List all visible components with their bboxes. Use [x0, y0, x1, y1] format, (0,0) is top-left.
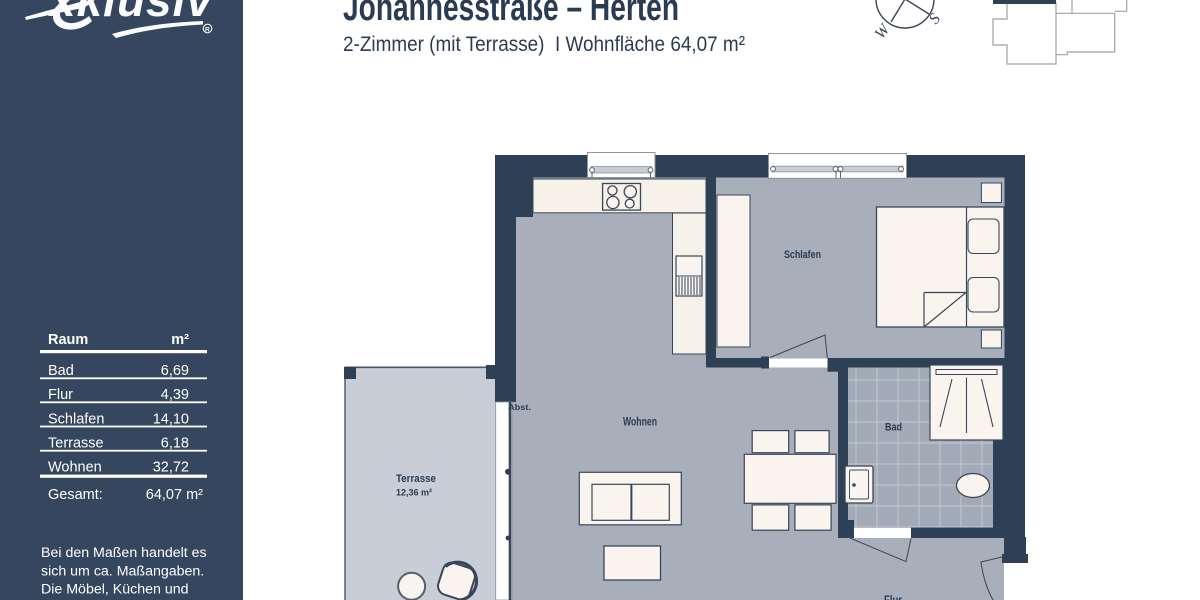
svg-text:2-Zimmer (mit Terrasse) I Woh: 2-Zimmer (mit Terrasse) I Wohnfläche 64,…: [343, 32, 745, 56]
svg-text:S: S: [926, 11, 944, 28]
svg-text:4,39: 4,39: [161, 387, 189, 403]
svg-text:Flur: Flur: [884, 595, 902, 600]
svg-text:Abst.: Abst.: [508, 402, 531, 412]
svg-text:12,36 m²: 12,36 m²: [396, 488, 432, 499]
svg-text:Terrasse: Terrasse: [48, 436, 104, 452]
svg-text:m²: m²: [171, 332, 189, 348]
svg-text:Die Möbel, Küchen und: Die Möbel, Küchen und: [41, 582, 189, 598]
svg-text:Terrasse: Terrasse: [396, 473, 436, 485]
svg-text:6,69: 6,69: [161, 363, 189, 379]
svg-text:Bad: Bad: [48, 363, 74, 379]
svg-text:32,72: 32,72: [153, 460, 189, 476]
svg-text:Schlafen: Schlafen: [784, 249, 821, 261]
svg-text:Raum: Raum: [48, 332, 88, 348]
svg-text:Wohnen: Wohnen: [48, 460, 102, 476]
svg-text:Flur: Flur: [48, 387, 73, 403]
svg-text:W: W: [872, 20, 895, 42]
svg-text:14,10: 14,10: [153, 411, 189, 427]
svg-text:Wohnen: Wohnen: [623, 417, 657, 429]
svg-text:64,07 m²: 64,07 m²: [146, 487, 203, 503]
svg-text:Bei den Maßen handelt es: Bei den Maßen handelt es: [41, 545, 207, 561]
svg-text:Bad: Bad: [885, 422, 902, 434]
svg-text:Gesamt:: Gesamt:: [48, 487, 103, 503]
svg-text:6,18: 6,18: [161, 436, 189, 452]
svg-text:sich um ca. Maßangaben.: sich um ca. Maßangaben.: [41, 563, 204, 579]
svg-text:Johannesstraße – Herten: Johannesstraße – Herten: [343, 0, 679, 29]
svg-text:Schlafen: Schlafen: [48, 411, 104, 427]
svg-text:R: R: [205, 27, 210, 34]
